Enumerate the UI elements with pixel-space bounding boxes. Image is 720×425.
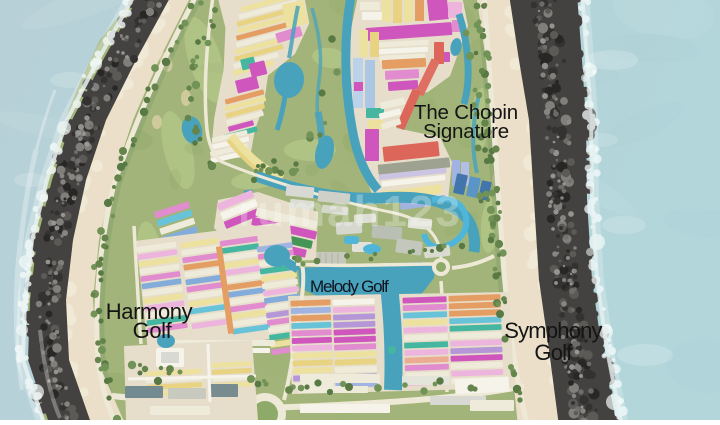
svg-text:rumah123: rumah123 [238, 187, 462, 236]
svg-text:The ChopinSignature: The ChopinSignature [414, 101, 518, 143]
svg-text:Melody Golf: Melody Golf [310, 277, 389, 296]
